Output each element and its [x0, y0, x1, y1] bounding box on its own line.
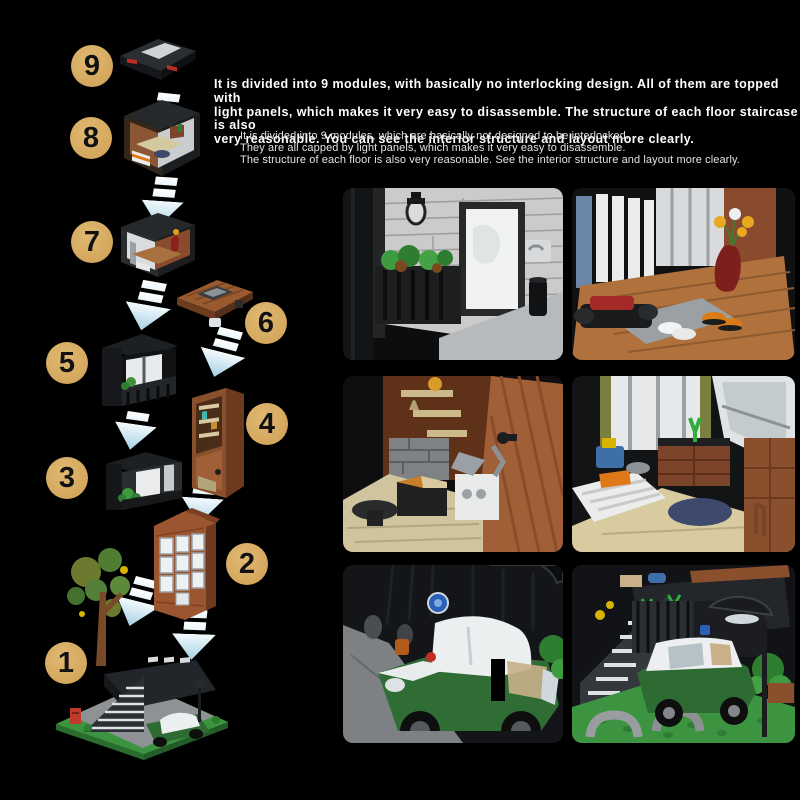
down-arrow-6-to-4: [188, 324, 253, 392]
module-thumb-5-balcony-room: [98, 330, 182, 414]
module-thumb-3-door-room: [102, 450, 186, 514]
detail-photo-garage: [343, 565, 563, 743]
subtext-paragraph: It is divided into 9 modules, which are …: [240, 130, 800, 167]
module-badge-8: 8: [70, 117, 112, 159]
module-thumb-1-ground-base: [48, 628, 233, 760]
badge-number: 3: [59, 462, 75, 495]
module-badge-3: 3: [46, 457, 88, 499]
badge-number: 6: [258, 307, 274, 340]
detail-photo-entry-hall: [572, 188, 795, 360]
detail-photo-entrance-balcony: [343, 188, 563, 360]
module-thumb-2-window-tower: [148, 506, 222, 624]
detail-photo-study-corner: [343, 376, 563, 552]
product-infographic: It is divided into 9 modules, with basic…: [0, 0, 800, 800]
module-thumb-8-bedroom: [118, 96, 204, 178]
detail-photo-bedroom: [572, 376, 795, 552]
badge-number: 7: [84, 226, 100, 259]
subtext-line-2: They are all capped by light panels, whi…: [240, 142, 800, 154]
module-thumb-4-cabinet-wall: [186, 386, 248, 500]
subtext-line-1: It is divided into 9 modules, which are …: [240, 130, 800, 142]
module-badge-5: 5: [46, 342, 88, 384]
module-thumb-9-roof-panel: [115, 36, 200, 94]
badge-number: 8: [83, 122, 99, 155]
module-badge-9: 9: [71, 45, 113, 87]
detail-photo-yard-staircase: [572, 565, 795, 743]
badge-number: 4: [259, 408, 275, 441]
module-badge-2: 2: [226, 543, 268, 585]
headline-line-1: It is divided into 9 modules, with basic…: [214, 78, 799, 106]
module-thumb-7-entry-hall: [116, 210, 200, 278]
module-thumb-6-roof-table: [173, 274, 257, 332]
module-badge-4: 4: [246, 403, 288, 445]
badge-number: 9: [84, 50, 100, 83]
badge-number: 2: [239, 548, 255, 581]
module-badge-7: 7: [71, 221, 113, 263]
badge-number: 5: [59, 347, 75, 380]
subtext-line-3: The structure of each floor is also very…: [240, 154, 800, 166]
